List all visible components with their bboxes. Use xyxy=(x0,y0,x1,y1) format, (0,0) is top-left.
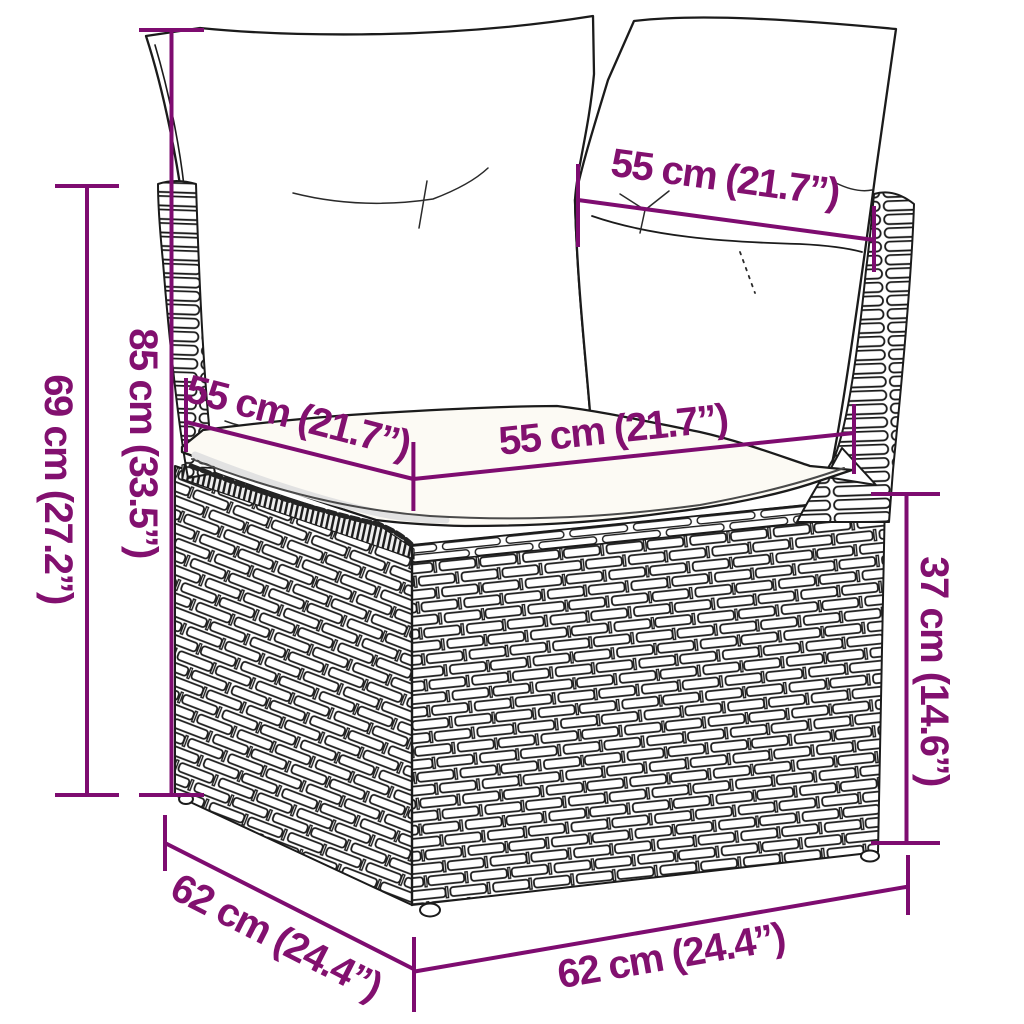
svg-text:37 cm (14.6”): 37 cm (14.6”) xyxy=(912,556,956,786)
svg-text:85 cm (33.5”): 85 cm (33.5”) xyxy=(121,328,165,558)
svg-text:69 cm (27.2”): 69 cm (27.2”) xyxy=(36,374,80,604)
